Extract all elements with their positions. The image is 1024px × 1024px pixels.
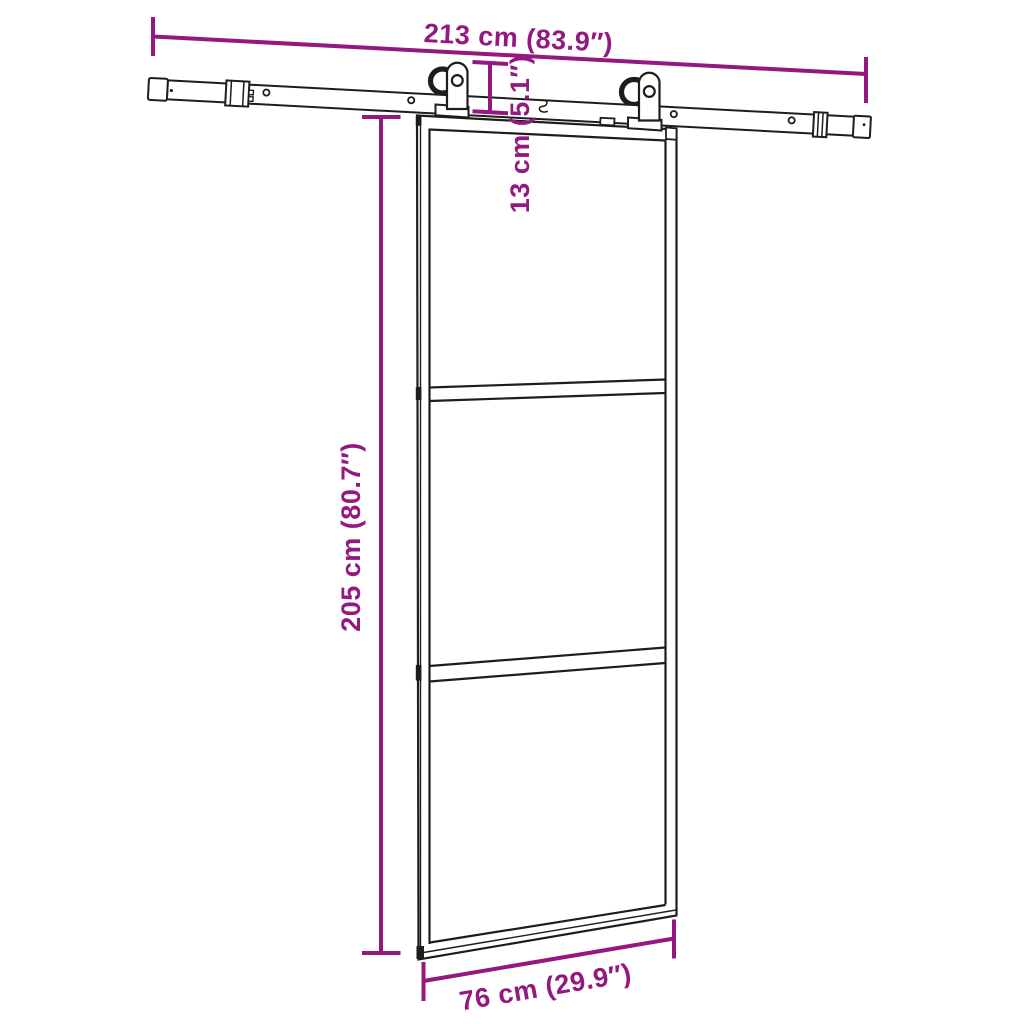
rail-sleeve-left-lug2	[248, 97, 253, 102]
dimension-door-height-label: 205 cm (80.7″)	[336, 442, 366, 632]
hanger-bolt-right	[644, 86, 655, 97]
rail-sleeve-left-lug1	[249, 90, 254, 95]
rail-end-cap-right	[853, 116, 871, 138]
rail-stop-block	[600, 118, 614, 126]
dimension-hardware-height-label: 13 cm (5.1″)	[505, 55, 535, 214]
dimension-door-height: 205 cm (80.7″)	[336, 117, 401, 953]
dimension-diagram: 213 cm (83.9″) 13 cm (5.1″) 205 cm (80.7…	[0, 0, 1024, 1024]
door-top-right-cap	[666, 128, 677, 140]
rail-sleeve-right	[813, 112, 828, 137]
rail-end-cap-left	[148, 78, 168, 101]
rail-sleeve-left	[225, 80, 249, 106]
diagram-canvas: 213 cm (83.9″) 13 cm (5.1″) 205 cm (80.7…	[0, 0, 1024, 1024]
door-outline	[417, 116, 677, 960]
dimension-door-width-label: 76 cm (29.9″)	[457, 958, 634, 1017]
dimension-hardware-height-tick-top	[473, 62, 509, 64]
sliding-door	[416, 116, 677, 960]
dimension-hardware-height-tick-bottom	[473, 111, 509, 113]
hanger-bolt-left	[452, 75, 463, 86]
